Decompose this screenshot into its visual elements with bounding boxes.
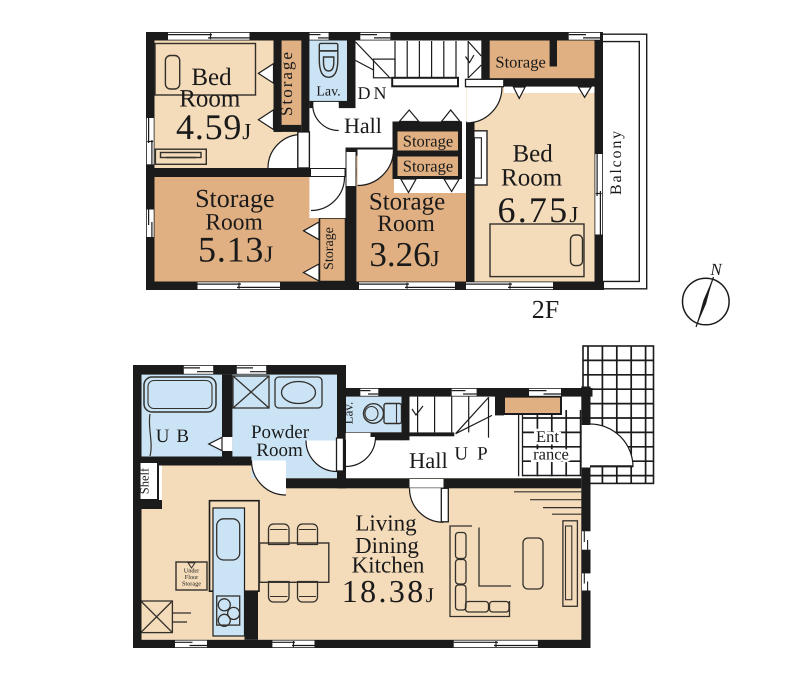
svg-text:18.38J: 18.38J [342, 573, 437, 609]
svg-text:4.59J: 4.59J [176, 107, 252, 147]
svg-text:N: N [709, 260, 723, 279]
svg-text:Hall: Hall [344, 113, 382, 138]
svg-text:Hall: Hall [409, 448, 448, 473]
svg-text:Living: Living [355, 511, 417, 536]
svg-text:Storage: Storage [495, 53, 545, 72]
svg-text:6.75J: 6.75J [498, 190, 581, 230]
svg-text:Ent: Ent [536, 427, 559, 446]
svg-text:Room: Room [377, 211, 434, 237]
svg-text:DN: DN [358, 83, 390, 103]
svg-text:3.26J: 3.26J [369, 235, 439, 274]
svg-text:5.13J: 5.13J [198, 230, 274, 270]
svg-text:Lav.: Lav. [316, 85, 340, 100]
svg-text:Room: Room [256, 440, 303, 461]
svg-text:Storage: Storage [277, 50, 296, 116]
svg-text:UP: UP [454, 444, 496, 465]
svg-text:Bed: Bed [512, 141, 553, 168]
svg-text:UB: UB [156, 426, 196, 447]
svg-text:Balcony: Balcony [608, 129, 625, 195]
svg-text:rance: rance [533, 445, 569, 464]
svg-text:Storage: Storage [403, 157, 453, 176]
svg-text:Storage: Storage [182, 581, 201, 588]
svg-text:Shelf: Shelf [138, 467, 152, 494]
svg-text:2F: 2F [532, 295, 559, 324]
svg-text:Storage: Storage [403, 132, 453, 151]
svg-text:Storage: Storage [322, 227, 337, 270]
svg-text:Lav.: Lav. [341, 402, 356, 425]
svg-text:Room: Room [501, 165, 563, 192]
